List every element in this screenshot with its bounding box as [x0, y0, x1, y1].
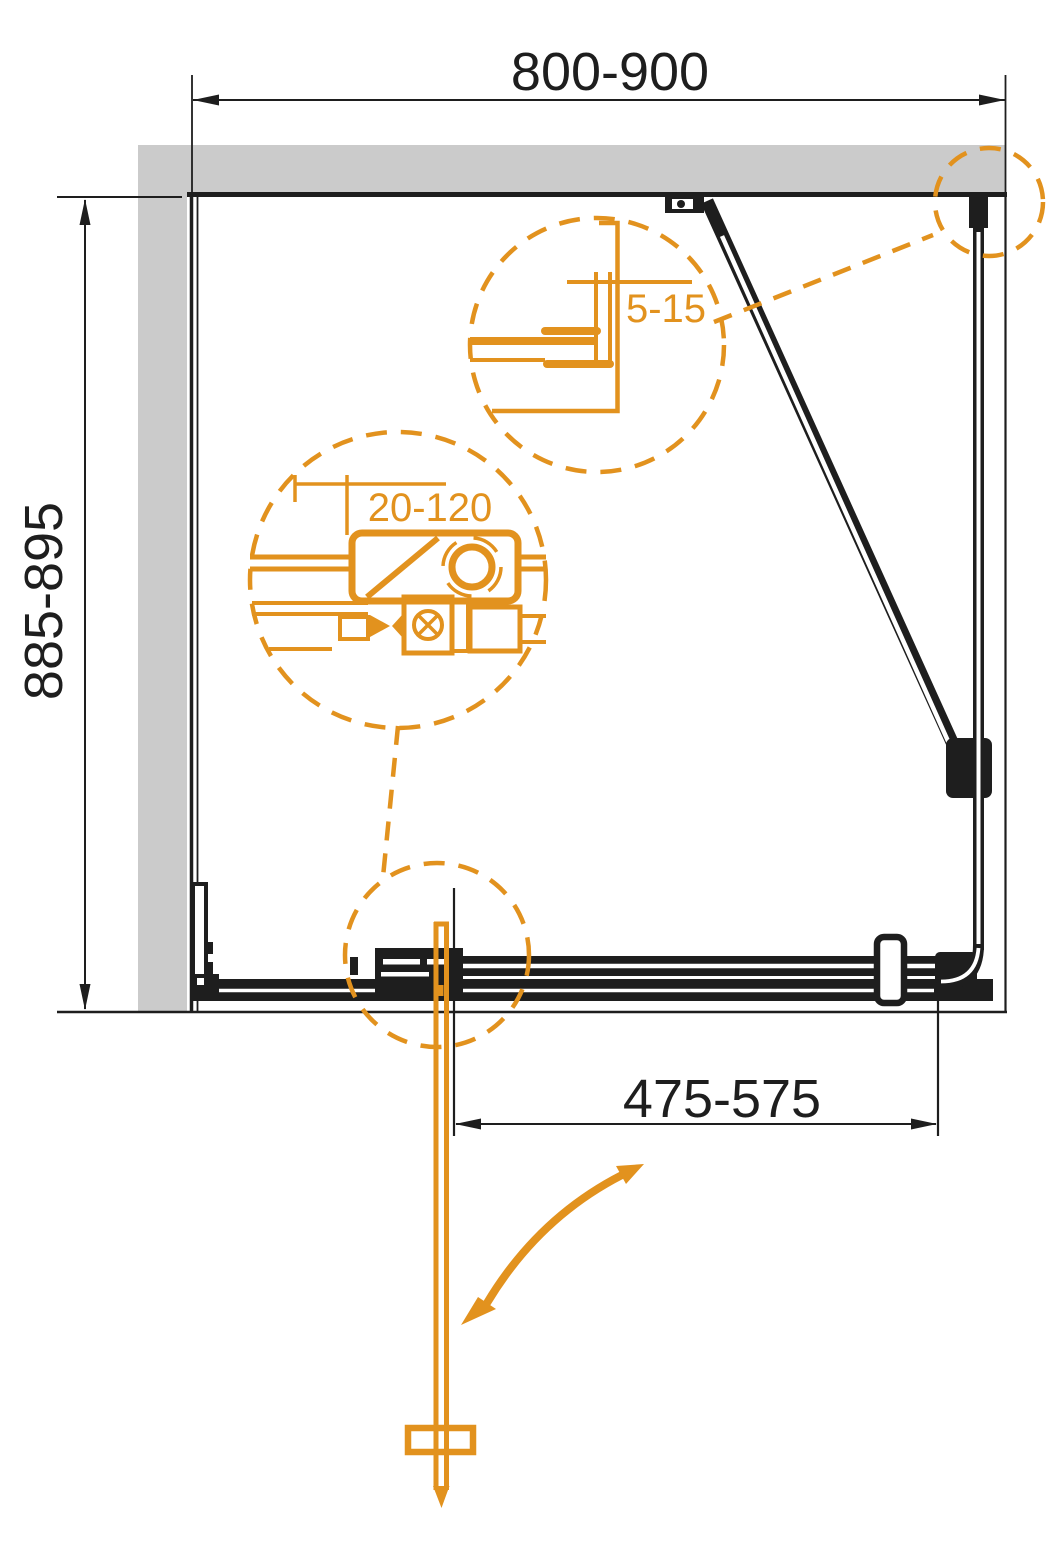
clamp-bowtie-icon — [392, 615, 402, 637]
open-door-glass-core — [722, 236, 952, 750]
arrowhead-up-icon — [80, 199, 91, 225]
detail-wall-gap-drawing: 5-15 — [470, 223, 706, 411]
dimension-door-opening-label: 475-575 — [623, 1069, 821, 1129]
clamp-bowtie-icon — [370, 615, 390, 637]
door-swing-arrow — [461, 1164, 644, 1325]
fixed-glass-panel — [938, 195, 988, 986]
dimension-door-opening: 475-575 — [455, 982, 938, 1136]
arrowhead-right-icon — [911, 1119, 937, 1130]
detail-adjustment-label: 20-120 — [368, 486, 493, 530]
door-handle-plan — [877, 937, 904, 1003]
arrowhead-right-icon — [979, 95, 1005, 106]
left-wall-profile — [193, 884, 219, 1001]
arrowhead-left-icon — [193, 95, 219, 106]
drawing-canvas: 800-900 885-895 — [0, 0, 1063, 1545]
enclosure-plan-drawing: 800-900 885-895 — [0, 0, 1063, 1545]
hinge-pin-icon — [677, 200, 685, 208]
roller-wheel-icon — [452, 547, 492, 587]
wall-left — [138, 145, 187, 1012]
arrowhead-left-icon — [455, 1119, 481, 1130]
detail-roller-drawing: 20-120 — [250, 475, 546, 653]
end-block — [470, 607, 520, 651]
clamp-block — [340, 617, 368, 639]
callout-leader-line — [383, 726, 398, 877]
door-hinge-and-panel — [665, 195, 992, 798]
profile-notch — [204, 942, 213, 954]
profile-foot — [193, 974, 219, 1001]
door-stop-block — [946, 738, 992, 798]
detail-gap-label: 5-15 — [626, 287, 706, 331]
guide-slot — [381, 972, 429, 977]
door-bottom-tip — [433, 1486, 450, 1508]
dimension-depth-label: 885-895 — [14, 502, 74, 700]
bottom-rail-assembly — [193, 948, 993, 1001]
arrowhead-down-icon — [80, 984, 91, 1010]
dimension-width-label: 800-900 — [511, 42, 709, 102]
profile-notch — [204, 962, 213, 974]
housing-brace — [367, 538, 438, 597]
rail-end-cap — [350, 957, 358, 975]
profile-foot-slot — [197, 978, 204, 985]
swing-arc — [487, 1175, 622, 1303]
door-handle-bar — [408, 1428, 473, 1452]
wall-top — [138, 145, 1006, 192]
guide-slot — [383, 959, 420, 965]
pivot-door — [408, 922, 473, 1508]
